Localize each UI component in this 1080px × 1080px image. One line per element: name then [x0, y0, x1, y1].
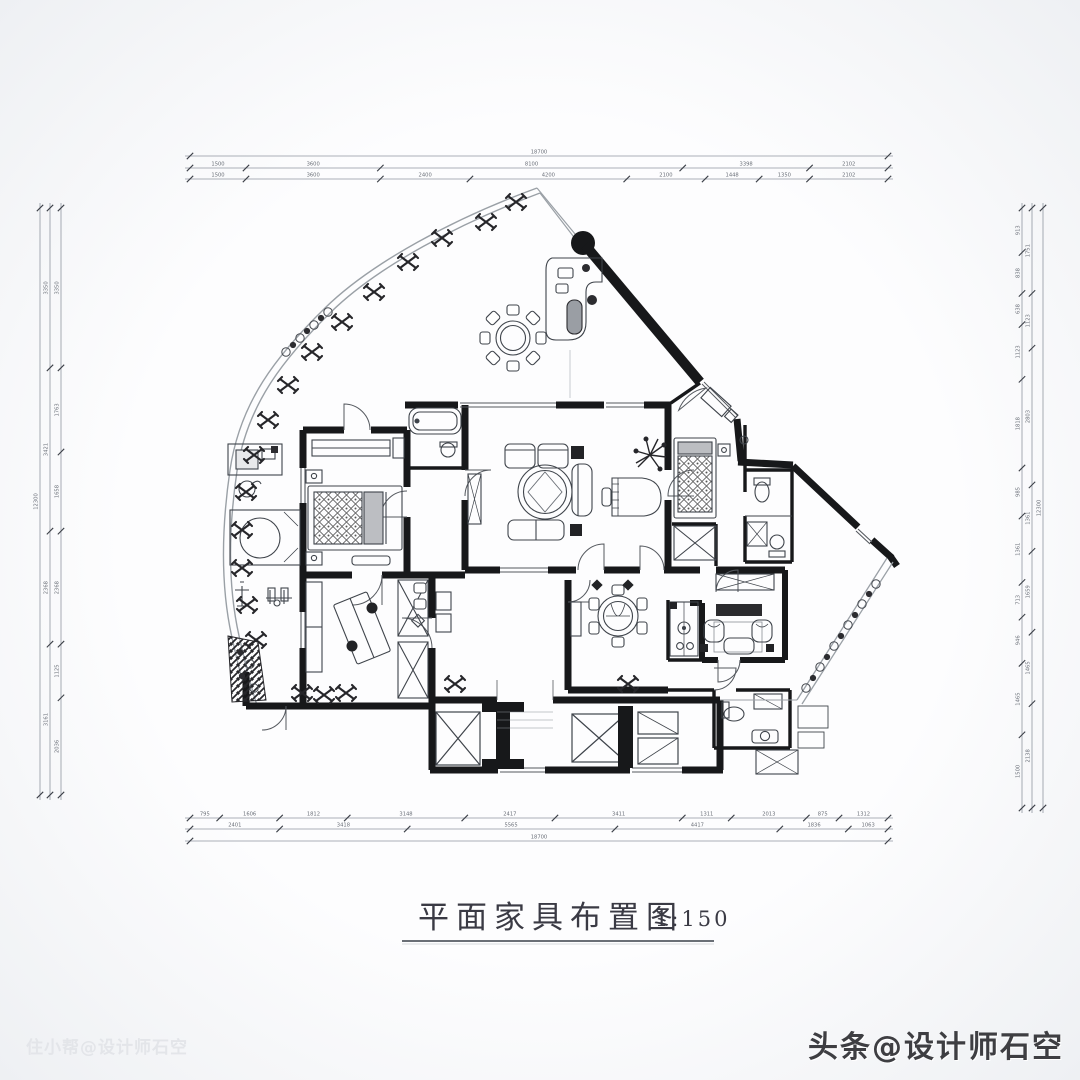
svg-text:1836: 1836 [807, 823, 820, 829]
svg-text:2368: 2368 [54, 581, 60, 594]
svg-text:3600: 3600 [307, 162, 320, 168]
svg-text:18700: 18700 [531, 835, 548, 841]
svg-text:713: 713 [1015, 595, 1021, 605]
svg-text:8100: 8100 [525, 162, 538, 168]
svg-text:2138: 2138 [1025, 749, 1031, 762]
svg-text:2102: 2102 [842, 173, 855, 179]
svg-text:3350: 3350 [54, 281, 60, 294]
svg-text:985: 985 [1015, 487, 1021, 497]
svg-text:2100: 2100 [659, 173, 672, 179]
study-lower-left [306, 580, 428, 698]
corridor [436, 592, 451, 632]
svg-text:18700: 18700 [531, 150, 548, 156]
svg-text:1751: 1751 [1025, 244, 1031, 257]
svg-text:2368: 2368 [43, 581, 49, 594]
svg-text:2036: 2036 [54, 740, 60, 753]
svg-text:1500: 1500 [1015, 765, 1021, 778]
tv-room [700, 574, 774, 654]
svg-text:1448: 1448 [726, 173, 739, 179]
svg-text:3148: 3148 [399, 812, 412, 818]
svg-text:2013: 2013 [762, 812, 775, 818]
svg-text:1465: 1465 [1015, 692, 1021, 705]
dining-room [571, 579, 647, 647]
bedroom-left [306, 438, 404, 565]
svg-text:3600: 3600 [307, 173, 320, 179]
watermark-brand: 头条@设计师石空 [808, 1022, 1064, 1066]
svg-text:1311: 1311 [700, 812, 713, 818]
drawing-title: 平面家具布置图 [418, 900, 684, 936]
svg-text:3421: 3421 [43, 443, 49, 456]
floor-plan-drawing: 1870015003600810033982102150036002400420… [0, 0, 1080, 1080]
svg-text:1812: 1812 [307, 812, 320, 818]
kitchen [670, 602, 698, 656]
svg-text:3398: 3398 [740, 162, 753, 168]
svg-text:5565: 5565 [504, 823, 517, 829]
living-room [468, 437, 666, 540]
svg-text:1361: 1361 [1015, 543, 1021, 556]
svg-text:4417: 4417 [691, 823, 704, 829]
svg-text:4200: 4200 [542, 173, 555, 179]
svg-text:875: 875 [818, 812, 828, 818]
svg-text:795: 795 [200, 812, 210, 818]
svg-text:1818: 1818 [1015, 417, 1021, 430]
svg-text:2417: 2417 [503, 812, 516, 818]
svg-text:2401: 2401 [228, 823, 241, 829]
svg-text:1500: 1500 [211, 173, 224, 179]
dimension-chains: 1870015003600810033982102150036002400420… [33, 150, 1046, 845]
wc-bottom [722, 694, 828, 774]
svg-text:3411: 3411 [612, 812, 625, 818]
svg-text:1312: 1312 [857, 812, 870, 818]
svg-text:2400: 2400 [419, 173, 432, 179]
svg-text:946: 946 [1015, 635, 1021, 645]
bath-top-left [409, 408, 461, 457]
svg-text:1763: 1763 [54, 403, 60, 416]
svg-text:2102: 2102 [842, 162, 855, 168]
svg-text:1500: 1500 [211, 162, 224, 168]
terrace-furniture [228, 258, 602, 606]
svg-text:12300: 12300 [33, 493, 39, 510]
floor-plan-page: 1870015003600810033982102150036002400420… [0, 0, 1080, 1080]
svg-text:1125: 1125 [54, 664, 60, 677]
svg-text:913: 913 [1015, 225, 1021, 235]
svg-text:1123: 1123 [1025, 314, 1031, 327]
svg-text:1123: 1123 [1015, 345, 1021, 358]
svg-text:1659: 1659 [1025, 585, 1031, 598]
balcony-right [720, 558, 893, 704]
svg-text:3418: 3418 [337, 823, 350, 829]
svg-text:1350: 1350 [778, 173, 791, 179]
svg-text:2803: 2803 [1025, 410, 1031, 423]
svg-text:3161: 3161 [43, 713, 49, 726]
svg-text:638: 638 [1015, 304, 1021, 314]
bathroom-right [745, 478, 792, 557]
svg-text:12300: 12300 [1036, 500, 1042, 517]
svg-text:838: 838 [1015, 268, 1021, 278]
watermark-faint: 住小帮@设计师石空 [26, 1033, 188, 1058]
bedroom-right [674, 387, 748, 560]
svg-text:1606: 1606 [243, 812, 256, 818]
svg-text:3350: 3350 [43, 281, 49, 294]
core-elevators [436, 702, 678, 769]
svg-text:1465: 1465 [1025, 661, 1031, 674]
svg-text:1063: 1063 [862, 823, 875, 829]
title-block: 平面家具布置图 1:150 [402, 900, 731, 944]
svg-text:1361: 1361 [1025, 512, 1031, 525]
svg-text:1658: 1658 [54, 485, 60, 498]
drawing-scale: 1:150 [655, 907, 731, 931]
